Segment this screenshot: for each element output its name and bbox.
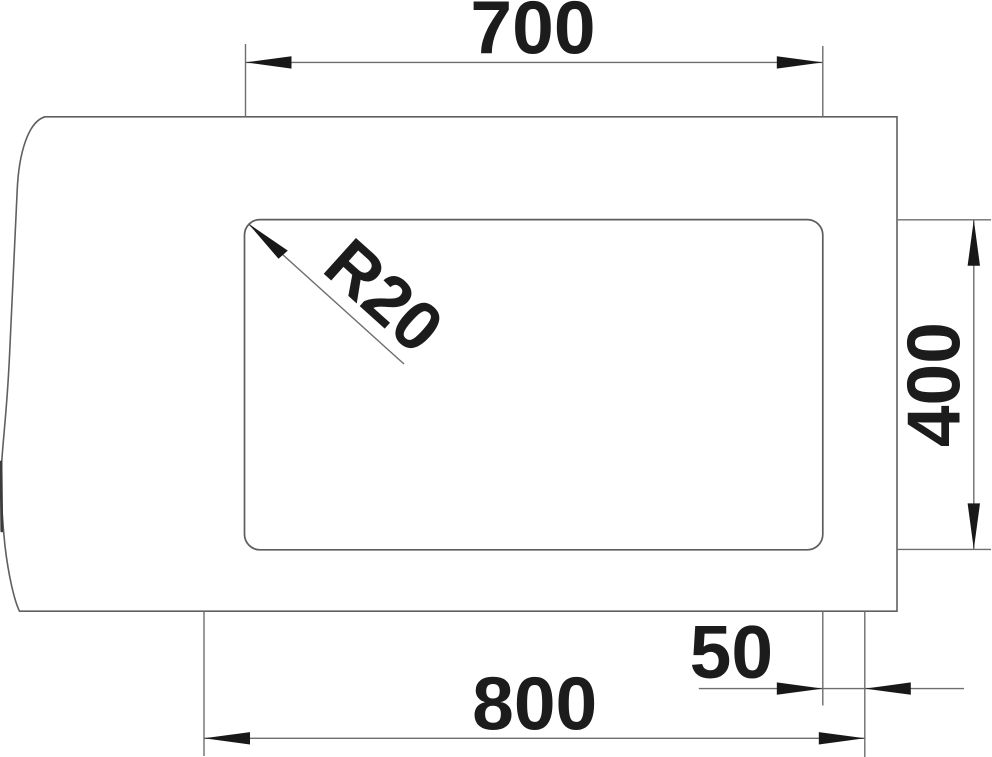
- svg-text:50: 50: [690, 610, 773, 694]
- svg-text:400: 400: [892, 322, 976, 447]
- svg-text:700: 700: [470, 0, 595, 70]
- svg-text:800: 800: [472, 662, 597, 746]
